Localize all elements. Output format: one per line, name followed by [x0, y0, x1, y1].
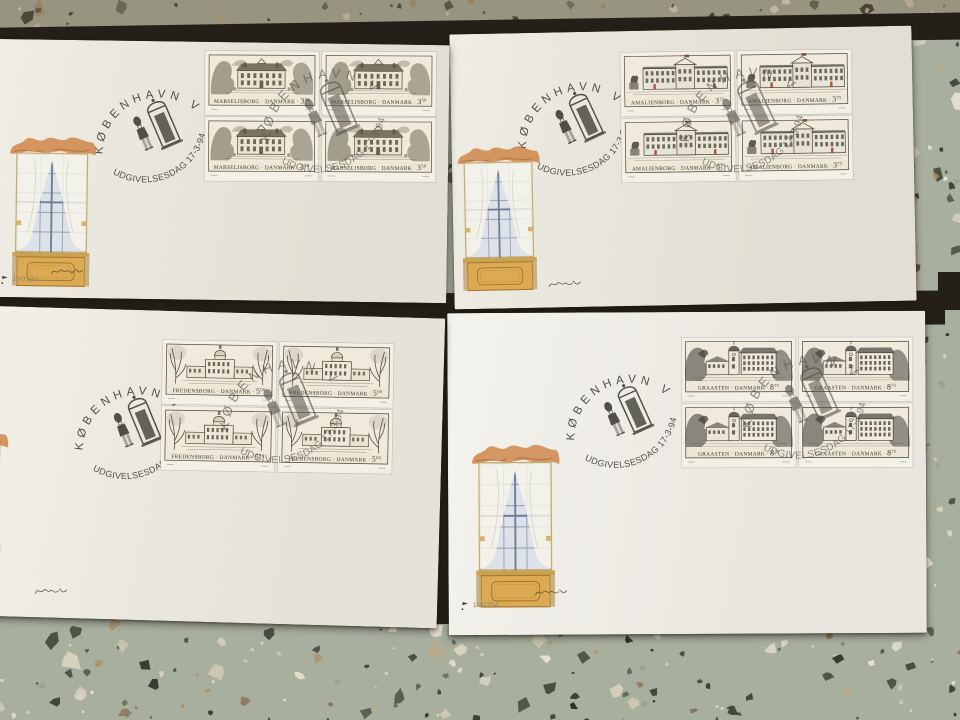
photo-scene: KØBENHAVN V UDGIVELSESDAG 17-3-94 [0, 0, 960, 720]
printer-imprint: 190394 [461, 601, 499, 610]
royal-guard-icon [302, 97, 328, 138]
imprint-code: 190394 [12, 276, 38, 283]
artist-signature [548, 278, 582, 291]
envelope-fredensborg: KØBENHAVN V UDGIVELSESDAG 17-3-94 [0, 306, 445, 629]
posthorn-icon [0, 275, 9, 284]
svg-text:KØBENHAVN V: KØBENHAVN V [548, 353, 678, 445]
artist-signature [34, 585, 68, 598]
window-illustration [0, 422, 13, 583]
envelope-marselisborg: KØBENHAVN V UDGIVELSESDAG 17-3-94 [0, 39, 450, 303]
artist-signature [50, 266, 84, 278]
svg-text:UDGIVELSESDAG 17-3-94: UDGIVELSESDAG 17-3-94 [109, 129, 218, 200]
posthorn-icon [461, 601, 470, 610]
royal-guard-icon [131, 115, 154, 151]
imprint-code: 190394 [473, 602, 499, 609]
printer-imprint: 190394 [0, 275, 38, 285]
envelope-amalienborg: KØBENHAVN V UDGIVELSESDAG 17-3-94 [449, 26, 916, 310]
artist-signature [535, 587, 569, 599]
royal-guard-icon [261, 387, 286, 428]
window-illustration [468, 439, 565, 612]
royal-guard-icon [111, 411, 134, 448]
svg-text:KØBENHAVN V: KØBENHAVN V [499, 61, 629, 155]
window-illustration [453, 141, 546, 295]
cancellation-mark: KØBENHAVN V UDGIVELSESDAG 17-3-94 [175, 307, 389, 510]
album-edge-right [938, 272, 960, 310]
envelope-graasten: KØBENHAVN V UDGIVELSESDAG 17-3-94 [447, 311, 927, 635]
